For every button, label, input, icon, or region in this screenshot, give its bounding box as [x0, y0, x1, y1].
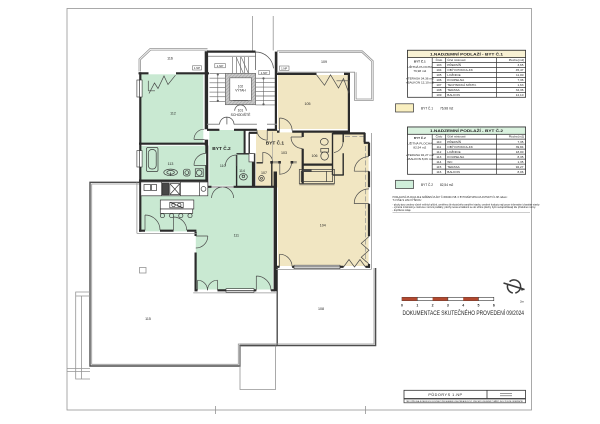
svg-text:TATO PŘÍLOHA JE NEDÍLNOU SOUČÁ: TATO PŘÍLOHA JE NEDÍLNOU SOUČÁSTÍ PROHLÁ… — [406, 400, 523, 403]
svg-text:DOKUMENTACE SKUTEČNÉHO PROVEDE: DOKUMENTACE SKUTEČNÉHO PROVEDENÍ 09/2024 — [403, 310, 525, 317]
svg-text:113: 113 — [168, 162, 174, 166]
svg-text:KOUPELNA: KOUPELNA — [447, 155, 465, 159]
svg-text:BALKON: BALKON — [447, 170, 460, 174]
svg-text:PŮDORYS 1.NP: PŮDORYS 1.NP — [428, 392, 462, 397]
svg-text:11,00: 11,00 — [516, 73, 524, 77]
svg-text:92,27: 92,27 — [516, 165, 524, 169]
svg-text:OBÝV.POKOJ+KK: OBÝV.POKOJ+KK — [447, 145, 474, 149]
svg-text:Číslo: Číslo — [436, 57, 443, 62]
svg-text:1.NP: 1.NP — [217, 64, 224, 68]
svg-text:1.NADZEMNÍ PODLAŽÍ - BYT Č.2: 1.NADZEMNÍ PODLAŽÍ - BYT Č.2 — [430, 128, 504, 133]
svg-text:8,35: 8,35 — [517, 155, 523, 159]
svg-text:18,00: 18,00 — [516, 150, 524, 154]
svg-text:BYT Č.2: BYT Č.2 — [212, 145, 231, 152]
svg-text:BALKON: BALKON — [447, 93, 460, 97]
svg-text:7,36: 7,36 — [517, 78, 523, 82]
svg-text:OBÝV.POKOJ+KK: OBÝV.POKOJ+KK — [447, 68, 474, 72]
svg-text:WC: WC — [447, 160, 453, 164]
svg-text:- výměra místností je měřena v: - výměra místností je měřena v úrovni po… — [393, 206, 537, 209]
svg-text:0: 0 — [401, 304, 403, 308]
svg-text:2m: 2m — [520, 299, 525, 303]
svg-text:1.NP: 1.NP — [261, 71, 268, 75]
svg-text:114: 114 — [239, 169, 245, 173]
svg-text:110: 110 — [436, 140, 441, 144]
svg-text:112: 112 — [436, 150, 441, 154]
svg-text:3: 3 — [447, 304, 449, 308]
svg-text:LOŽNICE: LOŽNICE — [447, 72, 460, 77]
svg-text:4: 4 — [462, 304, 464, 308]
svg-text:Plocha [m2]: Plocha [m2] — [509, 135, 524, 139]
svg-text:- plochy jsou uvedeny včetně v: - plochy jsou uvedeny včetně vnitřních p… — [393, 203, 541, 206]
svg-text:TECHNICKÁ MÍSTN.: TECHNICKÁ MÍSTN. — [447, 83, 476, 87]
svg-text:1: 1 — [416, 304, 418, 308]
svg-text:6: 6 — [493, 304, 495, 308]
svg-text:BYT Č.1: BYT Č.1 — [266, 140, 285, 147]
svg-text:105: 105 — [305, 102, 311, 106]
svg-text:- doplňkové údaje: - doplňkové údaje — [393, 210, 412, 212]
svg-text:103: 103 — [281, 151, 287, 155]
svg-text:TERASA: TERASA — [447, 88, 460, 92]
svg-text:109: 109 — [436, 93, 441, 97]
svg-text:115: 115 — [436, 165, 441, 169]
svg-text:76,98 m2: 76,98 m2 — [440, 107, 454, 111]
svg-text:PŘEDSÍŇ: PŘEDSÍŇ — [447, 139, 461, 144]
svg-text:SCHODIŠTĚ: SCHODIŠTĚ — [231, 112, 252, 117]
svg-text:5: 5 — [478, 304, 480, 308]
svg-text:114: 114 — [436, 160, 441, 164]
svg-text:109: 109 — [321, 60, 327, 64]
svg-text:Číslo: Číslo — [436, 134, 443, 139]
svg-text:110: 110 — [220, 164, 226, 168]
svg-text:101: 101 — [238, 109, 244, 113]
svg-text:116: 116 — [167, 57, 173, 61]
svg-text:113: 113 — [436, 155, 441, 159]
svg-text:1.NP: 1.NP — [194, 66, 200, 70]
svg-text:103: 103 — [436, 63, 441, 67]
svg-text:7,35: 7,35 — [517, 140, 523, 144]
svg-text:1,35: 1,35 — [517, 160, 523, 164]
svg-text:111: 111 — [437, 145, 442, 149]
svg-text:+BALKON 12,10 m2: +BALKON 12,10 m2 — [406, 81, 434, 85]
svg-text:Účel místnosti: Účel místnosti — [447, 135, 466, 139]
svg-text:106: 106 — [312, 154, 318, 158]
svg-text:82,54 m2: 82,54 m2 — [440, 183, 454, 187]
svg-text:116: 116 — [436, 170, 441, 174]
svg-text:BYT Č.2: BYT Č.2 — [421, 182, 433, 187]
svg-text:107: 107 — [261, 171, 267, 175]
svg-text:111: 111 — [234, 234, 239, 238]
svg-text:1.NADZEMNÍ PODLAŽÍ - BYT Č.1: 1.NADZEMNÍ PODLAŽÍ - BYT Č.1 — [430, 51, 504, 56]
svg-text:3,65: 3,65 — [517, 63, 523, 67]
svg-text:34,36: 34,36 — [516, 88, 524, 92]
svg-text:Plocha [m2]: Plocha [m2] — [509, 58, 524, 62]
svg-text:BYT Č.1: BYT Č.1 — [414, 59, 426, 64]
svg-text:KOUPELNA: KOUPELNA — [447, 78, 465, 82]
svg-text:LOŽNICE: LOŽNICE — [447, 149, 460, 154]
svg-text:39,84: 39,84 — [516, 145, 524, 149]
svg-text:106: 106 — [436, 78, 441, 82]
svg-text:BYT Č.1: BYT Č.1 — [421, 106, 433, 111]
svg-text:112: 112 — [170, 111, 176, 115]
svg-text:BYT Č.2: BYT Č.2 — [414, 135, 426, 140]
svg-text:107: 107 — [436, 83, 441, 87]
svg-text:105: 105 — [436, 73, 441, 77]
svg-text:TERASA: TERASA — [447, 165, 460, 169]
svg-text:82,54 m2: 82,54 m2 — [413, 146, 426, 150]
svg-text:+BALKON 8,06 m2: +BALKON 8,06 m2 — [407, 157, 434, 161]
svg-text:Účel místnosti: Účel místnosti — [447, 58, 466, 62]
svg-text:108: 108 — [318, 307, 324, 311]
svg-text:VÝTAH: VÝTAH — [235, 89, 246, 93]
svg-text:1,63: 1,63 — [517, 83, 523, 87]
svg-text:104: 104 — [320, 224, 326, 228]
svg-text:8,06: 8,06 — [517, 170, 523, 174]
svg-text:45,47: 45,47 — [516, 68, 524, 72]
svg-text:76,98 m2: 76,98 m2 — [413, 69, 426, 73]
svg-text:104: 104 — [436, 68, 441, 72]
svg-text:2: 2 — [432, 304, 434, 308]
svg-text:108: 108 — [436, 88, 441, 92]
svg-text:12,10: 12,10 — [516, 93, 524, 97]
svg-text:PŘEDSÍŇ: PŘEDSÍŇ — [447, 62, 461, 67]
svg-text:1.NP: 1.NP — [281, 66, 287, 70]
svg-text:115: 115 — [145, 317, 151, 321]
